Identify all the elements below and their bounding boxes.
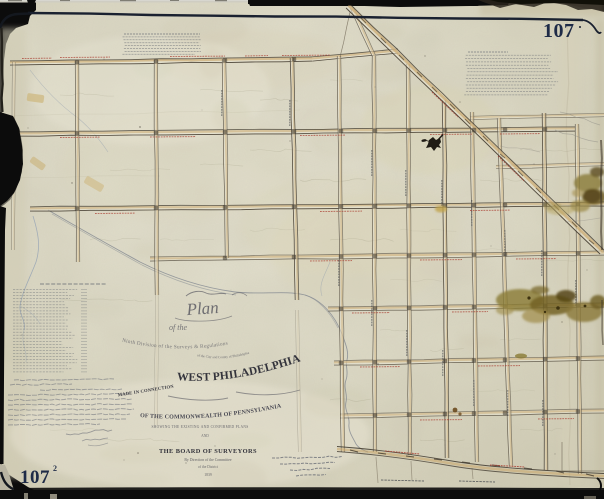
svg-text:THE BOARD OF SURVEYORS: THE BOARD OF SURVEYORS: [159, 448, 257, 455]
svg-text:107: 107: [20, 467, 50, 488]
svg-text:2: 2: [53, 464, 57, 473]
svg-text:of the District: of the District: [198, 465, 218, 469]
svg-text:Plan: Plan: [185, 298, 219, 319]
svg-text:AND: AND: [201, 434, 209, 438]
svg-text:107: 107: [543, 20, 575, 42]
svg-text:By Direction of the Committee: By Direction of the Committee: [184, 458, 232, 462]
svg-text:1839: 1839: [204, 473, 212, 477]
svg-text:of the: of the: [169, 323, 187, 332]
svg-text:SHOWING THE EXISTING AND CONFI: SHOWING THE EXISTING AND CONFIRMED PLANS: [151, 425, 248, 429]
